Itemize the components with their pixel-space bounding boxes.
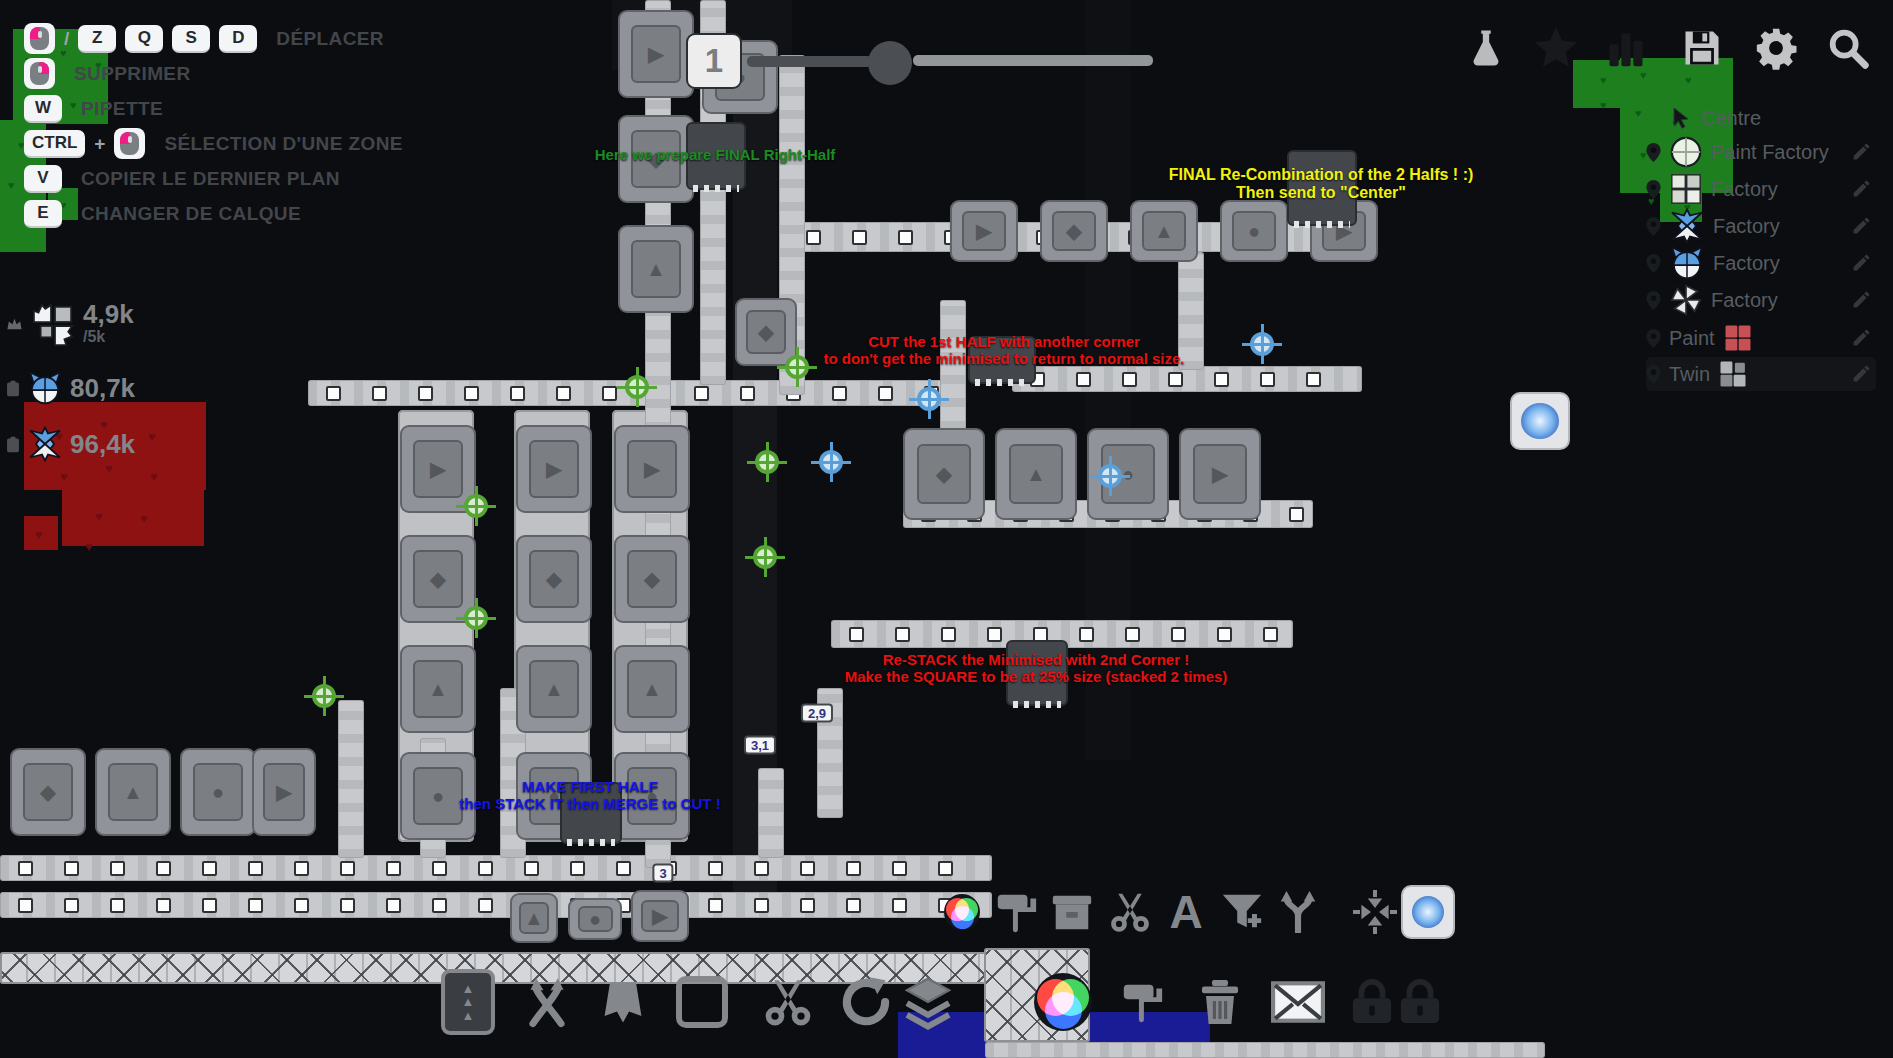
conveyor-belt	[985, 1042, 1545, 1058]
throughput-badge: 2,9	[801, 704, 833, 723]
toolbar-compress-arrows-button[interactable]	[1351, 888, 1399, 936]
item-square	[1217, 627, 1232, 642]
annotation-line: Then send to "Center"	[1169, 184, 1474, 202]
conveyor-belt	[338, 700, 364, 858]
splitter-arrows-icon	[1275, 889, 1321, 935]
marker-row-paint[interactable]: Paint	[1646, 321, 1876, 355]
heart-dot: ♥	[60, 470, 68, 483]
marker-label: Paint	[1669, 327, 1715, 350]
valve-blue	[1250, 332, 1274, 356]
machine: ▶	[614, 425, 690, 513]
edit-pencil-icon[interactable]	[1851, 252, 1872, 273]
item-square	[754, 861, 769, 876]
shortcut-label: CHANGER DE CALQUE	[81, 203, 301, 225]
achievements-star-icon	[1531, 24, 1581, 72]
valve-blue	[819, 450, 843, 474]
item-square	[64, 861, 79, 876]
shortcut-row: CTRL+SÉLECTION D'UNE ZONE	[24, 127, 403, 160]
item-square	[478, 898, 493, 913]
machine: ▲	[400, 645, 476, 733]
edit-pencil-icon[interactable]	[1851, 327, 1872, 348]
item-square	[708, 861, 723, 876]
item-square	[602, 386, 617, 401]
edit-pencil-icon[interactable]	[1851, 178, 1872, 199]
item-square	[570, 861, 585, 876]
conveyor-belt	[0, 855, 992, 881]
item-square	[156, 861, 171, 876]
shortcut-row: ECHANGER DE CALQUE	[24, 197, 403, 230]
machine: ◆	[735, 298, 797, 366]
item-square	[849, 627, 864, 642]
item-square	[892, 861, 907, 876]
pinned-shape-counter[interactable]: 4,9k/5k	[6, 298, 134, 350]
edit-pencil-icon[interactable]	[1851, 289, 1872, 310]
item-square	[478, 861, 493, 876]
item-square	[898, 230, 913, 245]
item-square	[294, 861, 309, 876]
item-square	[832, 386, 847, 401]
machine: ▲	[95, 748, 171, 836]
marker-label: Twin	[1669, 363, 1710, 386]
item-square	[418, 386, 433, 401]
item-square	[386, 861, 401, 876]
item-square	[800, 898, 815, 913]
annotation-line: to don't get the minimised to return to …	[823, 350, 1184, 367]
key-s: S	[172, 25, 210, 53]
shape-cat-blue-icon	[1669, 245, 1705, 281]
toolbar-rotator-arrow-button[interactable]	[839, 975, 893, 1029]
heart-dot: ♥	[85, 540, 93, 553]
first-half-note: MAKE FIRST HALFthen STACK IT then MERGE …	[459, 778, 720, 812]
crown-icon	[6, 317, 23, 331]
save-disk-icon	[1680, 26, 1724, 70]
shortcut-row: WPIPETTE	[24, 92, 403, 125]
item-square	[156, 898, 171, 913]
trash-can-icon	[1196, 978, 1244, 1026]
toolbar-paint-roller-button[interactable]	[993, 889, 1039, 935]
settings-gear-icon	[1753, 25, 1799, 71]
item-square	[202, 898, 217, 913]
search-magnifier-icon	[1825, 25, 1871, 71]
pinned-shape-counter[interactable]: 96,4k	[6, 418, 135, 470]
item-square	[248, 898, 263, 913]
stacker-layers-icon	[900, 974, 956, 1030]
item-square	[1125, 627, 1140, 642]
machine: ▲	[995, 428, 1077, 520]
machine: ▶	[618, 10, 694, 98]
heart-dot: ♥	[140, 512, 148, 525]
item-square	[616, 861, 631, 876]
paw-dot: ♥	[1600, 100, 1607, 111]
slider-track-filled[interactable]	[747, 56, 872, 67]
item-square	[432, 861, 447, 876]
item-square	[800, 861, 815, 876]
item-square	[987, 627, 1002, 642]
item-square	[556, 386, 571, 401]
map-pin-icon	[1646, 143, 1661, 162]
shortcut-label: SUPPRIMER	[74, 63, 191, 85]
item-square	[18, 898, 33, 913]
annotation-line: FINAL Re-Combination of the 2 Halfs ! :)	[1169, 166, 1474, 184]
shortcut-label: DÉPLACER	[276, 28, 384, 50]
toolbar-storage-crate-button[interactable]	[1049, 889, 1095, 935]
shape-fox-blue-icon	[27, 426, 63, 462]
toolbar-mail-envelope-button[interactable]	[1271, 981, 1325, 1023]
shape-circle-cross-icon	[1669, 135, 1703, 169]
paw-dot: ♥	[8, 180, 15, 191]
machine: ▲	[1130, 200, 1198, 262]
item-square	[64, 898, 79, 913]
rotator-arrow-icon	[839, 975, 893, 1029]
settings-gear-button[interactable]	[1750, 20, 1802, 76]
valve-green	[755, 450, 779, 474]
hotbar-slot-number: 1	[705, 42, 723, 80]
toolbar-stacker-layers-button[interactable]	[900, 974, 956, 1030]
storage-crate-icon	[1049, 889, 1095, 935]
shortcut-label: PIPETTE	[81, 98, 163, 120]
color-wheel-icon	[944, 894, 980, 930]
machine: ▲	[516, 645, 592, 733]
valve-blue	[1098, 464, 1122, 488]
square-outline-icon	[676, 976, 728, 1028]
shortcut-help-panel: /ZQSDDÉPLACERSUPPRIMERWPIPETTECTRL+SÉLEC…	[24, 22, 403, 232]
shortcut-row: /ZQSDDÉPLACER	[24, 22, 403, 55]
item-square	[18, 861, 33, 876]
item-square	[708, 898, 723, 913]
crystal-cube-icon	[1401, 885, 1455, 939]
machine: ◆	[1040, 200, 1108, 262]
cutter-scissors-icon	[762, 976, 814, 1028]
machine: ◆	[614, 535, 690, 623]
item-square	[340, 898, 355, 913]
key-z: Z	[78, 25, 116, 53]
marker-label: Factory	[1711, 178, 1778, 201]
toolbar-color-wheel-button[interactable]	[944, 894, 980, 930]
item-square	[294, 898, 309, 913]
key-v: V	[24, 165, 62, 193]
item-square	[740, 386, 755, 401]
conveyor-belt	[0, 892, 992, 918]
key-ctrl: CTRL	[24, 130, 85, 158]
cut-note: CUT the 1st HALF with another cornerto d…	[823, 333, 1184, 367]
item-square	[1079, 627, 1094, 642]
half-cape-icon	[597, 976, 649, 1028]
lift-belts-icon: ▲▲▲	[441, 969, 495, 1035]
mouse-left-icon	[24, 23, 55, 54]
lock-icon	[1400, 979, 1440, 1025]
toolbar-cutter-scissors-button[interactable]	[762, 976, 814, 1028]
item-square	[1076, 372, 1091, 387]
item-square	[754, 898, 769, 913]
toolbar-splitter-arrows-button[interactable]	[1275, 889, 1321, 935]
grid-gray-icon	[1718, 359, 1748, 389]
heart-dot: ♥	[95, 510, 103, 523]
slider-knob[interactable]	[868, 41, 912, 85]
edit-pencil-icon[interactable]	[1851, 141, 1872, 162]
counter-value: 4,9k	[83, 301, 134, 327]
throughput-badge: 3	[652, 864, 673, 883]
clipboard-copy-icon[interactable]	[6, 380, 20, 397]
key-d: D	[219, 25, 257, 53]
restack-note: Re-STACK the Minimised with 2nd Corner !…	[845, 651, 1228, 685]
throughput-badge: 3,1	[744, 736, 776, 755]
toolbar-lock-button[interactable]	[1400, 979, 1440, 1025]
marker-label: Factory	[1713, 215, 1780, 238]
toolbar-trash-can-button[interactable]	[1196, 978, 1244, 1026]
map-pin-icon	[1646, 291, 1661, 310]
filter-funnel-icon	[1219, 889, 1265, 935]
item-square	[941, 627, 956, 642]
machine: ●	[568, 898, 622, 940]
item-square	[340, 861, 355, 876]
item-square	[1289, 507, 1304, 522]
mouse-right-icon	[24, 58, 55, 89]
edit-pencil-icon[interactable]	[1851, 215, 1872, 236]
shape-fox-blue-icon	[1669, 208, 1705, 244]
item-square	[1122, 372, 1137, 387]
final-note: FINAL Re-Combination of the 2 Halfs ! :)…	[1169, 166, 1474, 202]
scissors-icon	[1108, 890, 1152, 934]
marker-row-factory[interactable]: Factory	[1646, 172, 1876, 206]
paw-dot: ♥	[1685, 75, 1692, 86]
machine: ◆	[903, 428, 985, 520]
item-square	[464, 386, 479, 401]
clipboard-copy-icon[interactable]	[6, 436, 20, 453]
machine: ▲	[510, 893, 558, 943]
toolbar-color-mixer-button[interactable]	[1034, 973, 1092, 1031]
key-w: W	[24, 95, 62, 123]
mail-envelope-icon	[1271, 981, 1325, 1023]
item-square	[846, 898, 861, 913]
item-square	[892, 898, 907, 913]
paw-dot: ♥	[1600, 75, 1607, 86]
annotation-line: CUT the 1st HALF with another corner	[823, 333, 1184, 350]
shortcut-row: VCOPIER LE DERNIER PLAN	[24, 162, 403, 195]
toolbar-half-cape-button[interactable]	[597, 976, 649, 1028]
valve-green	[464, 494, 488, 518]
item-square	[510, 386, 525, 401]
annotation-line: Re-STACK the Minimised with 2nd Corner !	[845, 651, 1228, 668]
map-pin-icon	[1646, 217, 1661, 236]
shape-windmill-white-icon	[1669, 283, 1703, 317]
counter-goal: /5k	[83, 327, 134, 346]
marker-label: Factory	[1713, 252, 1780, 275]
item-square	[524, 861, 539, 876]
pinned-shape-counter[interactable]: 80,7k	[6, 362, 135, 414]
machine: ▲	[618, 225, 694, 313]
item-square	[110, 898, 125, 913]
statistics-bars-button[interactable]	[1600, 20, 1652, 76]
paint-roller-icon	[993, 889, 1039, 935]
valve-blue	[917, 387, 941, 411]
item-square	[878, 386, 893, 401]
item-square	[1168, 372, 1183, 387]
item-square	[1263, 627, 1278, 642]
achievements-star-button[interactable]	[1530, 20, 1582, 76]
map-pin-icon	[1646, 180, 1661, 199]
valve-green	[625, 375, 649, 399]
shortcut-row: SUPPRIMER	[24, 57, 403, 90]
item-square	[432, 898, 447, 913]
cursor-arrow-icon	[1669, 106, 1693, 130]
counter-value: 80,7k	[70, 375, 135, 401]
map-pin-icon	[1646, 329, 1661, 348]
marker-row-factory[interactable]: Factory	[1646, 246, 1876, 280]
shape-cat-blue-icon	[27, 370, 63, 406]
toolbar-scissors-button[interactable]	[1108, 890, 1152, 934]
machine: ▶	[516, 425, 592, 513]
machine: ◆	[400, 535, 476, 623]
item-square	[806, 230, 821, 245]
toolbar-lock-button[interactable]	[1352, 979, 1392, 1025]
save-disk-button[interactable]	[1676, 20, 1728, 76]
machine: ●	[1220, 200, 1288, 262]
machine: ▶	[1179, 428, 1261, 520]
paw-dot: ♥	[1635, 108, 1642, 119]
glow-machine	[1510, 392, 1570, 450]
toolbar-square-outline-button[interactable]	[676, 976, 728, 1028]
resource-patch-red	[62, 488, 204, 546]
paint-roller-icon	[1119, 979, 1165, 1025]
machine: ●	[180, 748, 256, 836]
heart-dot: ♥	[148, 430, 156, 443]
lock-icon	[1352, 979, 1392, 1025]
separator: /	[64, 28, 69, 50]
item-square	[110, 861, 125, 876]
toolbar-letter-A-button[interactable]: A	[1169, 889, 1202, 935]
heart-dot: ♥	[35, 528, 43, 541]
toolbar-filter-funnel-button[interactable]	[1219, 889, 1265, 935]
marker-label: Paint Factory	[1711, 141, 1829, 164]
shape-wings-icon	[30, 301, 76, 347]
item-square	[248, 861, 263, 876]
key-e: E	[24, 200, 62, 228]
toolbar-lift-belts-button[interactable]: ▲▲▲	[441, 969, 495, 1035]
hotbar-slot[interactable]: 1	[686, 33, 742, 89]
item-square	[846, 861, 861, 876]
item-square	[938, 861, 953, 876]
search-magnifier-button[interactable]	[1822, 20, 1874, 76]
item-square	[1171, 627, 1186, 642]
map-pin-icon	[1646, 365, 1661, 384]
counter-value: 96,4k	[70, 431, 135, 457]
machine: ▲	[614, 645, 690, 733]
item-square	[852, 230, 867, 245]
item-square	[895, 627, 910, 642]
heart-dot: ♥	[150, 470, 158, 483]
separator: +	[94, 133, 105, 155]
compress-arrows-icon	[1351, 888, 1399, 936]
color-wheel-icon	[1034, 973, 1092, 1031]
marker-row-twin[interactable]: Twin	[1646, 357, 1876, 391]
marker-row-factory[interactable]: Factory	[1646, 209, 1876, 243]
shortcut-label: COPIER LE DERNIER PLAN	[81, 168, 340, 190]
marker-label: Factory	[1711, 289, 1778, 312]
prepare-note: Here we prepare FINAL Right-Half	[595, 146, 836, 163]
statistics-bars-icon	[1604, 26, 1648, 70]
item-square	[1214, 372, 1229, 387]
annotation-line: Here we prepare FINAL Right-Half	[595, 146, 836, 163]
annotation-line: Make the SQUARE to be at 25% size (stack…	[845, 668, 1228, 685]
crossed-arrows-icon	[521, 976, 573, 1028]
edit-pencil-icon[interactable]	[1851, 363, 1872, 384]
annotation-line: then STACK IT then MERGE to CUT !	[459, 795, 720, 812]
marker-row-centre[interactable]: Centre	[1646, 101, 1876, 135]
machine: ◆	[516, 535, 592, 623]
item-square	[202, 861, 217, 876]
item-square	[326, 386, 341, 401]
valve-green	[464, 606, 488, 630]
machine: ▶	[252, 748, 316, 836]
item-square	[694, 386, 709, 401]
annotation-line: MAKE FIRST HALF	[459, 778, 720, 795]
slider-track-empty[interactable]	[913, 55, 1153, 66]
toolbar-crystal-cube-button[interactable]	[1401, 885, 1455, 939]
toolbar-crossed-arrows-button[interactable]	[521, 976, 573, 1028]
letter-a-icon: A	[1169, 889, 1202, 935]
item-square	[1306, 372, 1321, 387]
research-flask-button[interactable]	[1460, 20, 1512, 76]
item-square	[372, 386, 387, 401]
mouse-left-icon	[114, 128, 145, 159]
shape-squares-pale-icon	[1669, 172, 1703, 206]
marker-row-paint-factory[interactable]: Paint Factory	[1646, 135, 1876, 169]
valve-green	[312, 684, 336, 708]
machine: ◆	[10, 748, 86, 836]
shortcut-label: SÉLECTION D'UNE ZONE	[164, 133, 402, 155]
marker-label: Centre	[1701, 107, 1761, 130]
research-flask-icon	[1467, 26, 1505, 70]
toolbar-paint-roller-button[interactable]	[1119, 979, 1165, 1025]
marker-row-factory[interactable]: Factory	[1646, 283, 1876, 317]
valve-green	[753, 545, 777, 569]
machine: ▶	[950, 200, 1018, 262]
machine: ▶	[631, 890, 689, 942]
item-square	[1260, 372, 1275, 387]
key-q: Q	[125, 25, 163, 53]
map-pin-icon	[1646, 254, 1661, 273]
grid-red-icon	[1723, 323, 1753, 353]
item-square	[386, 898, 401, 913]
conveyor-belt	[758, 768, 784, 858]
valve-green	[785, 355, 809, 379]
